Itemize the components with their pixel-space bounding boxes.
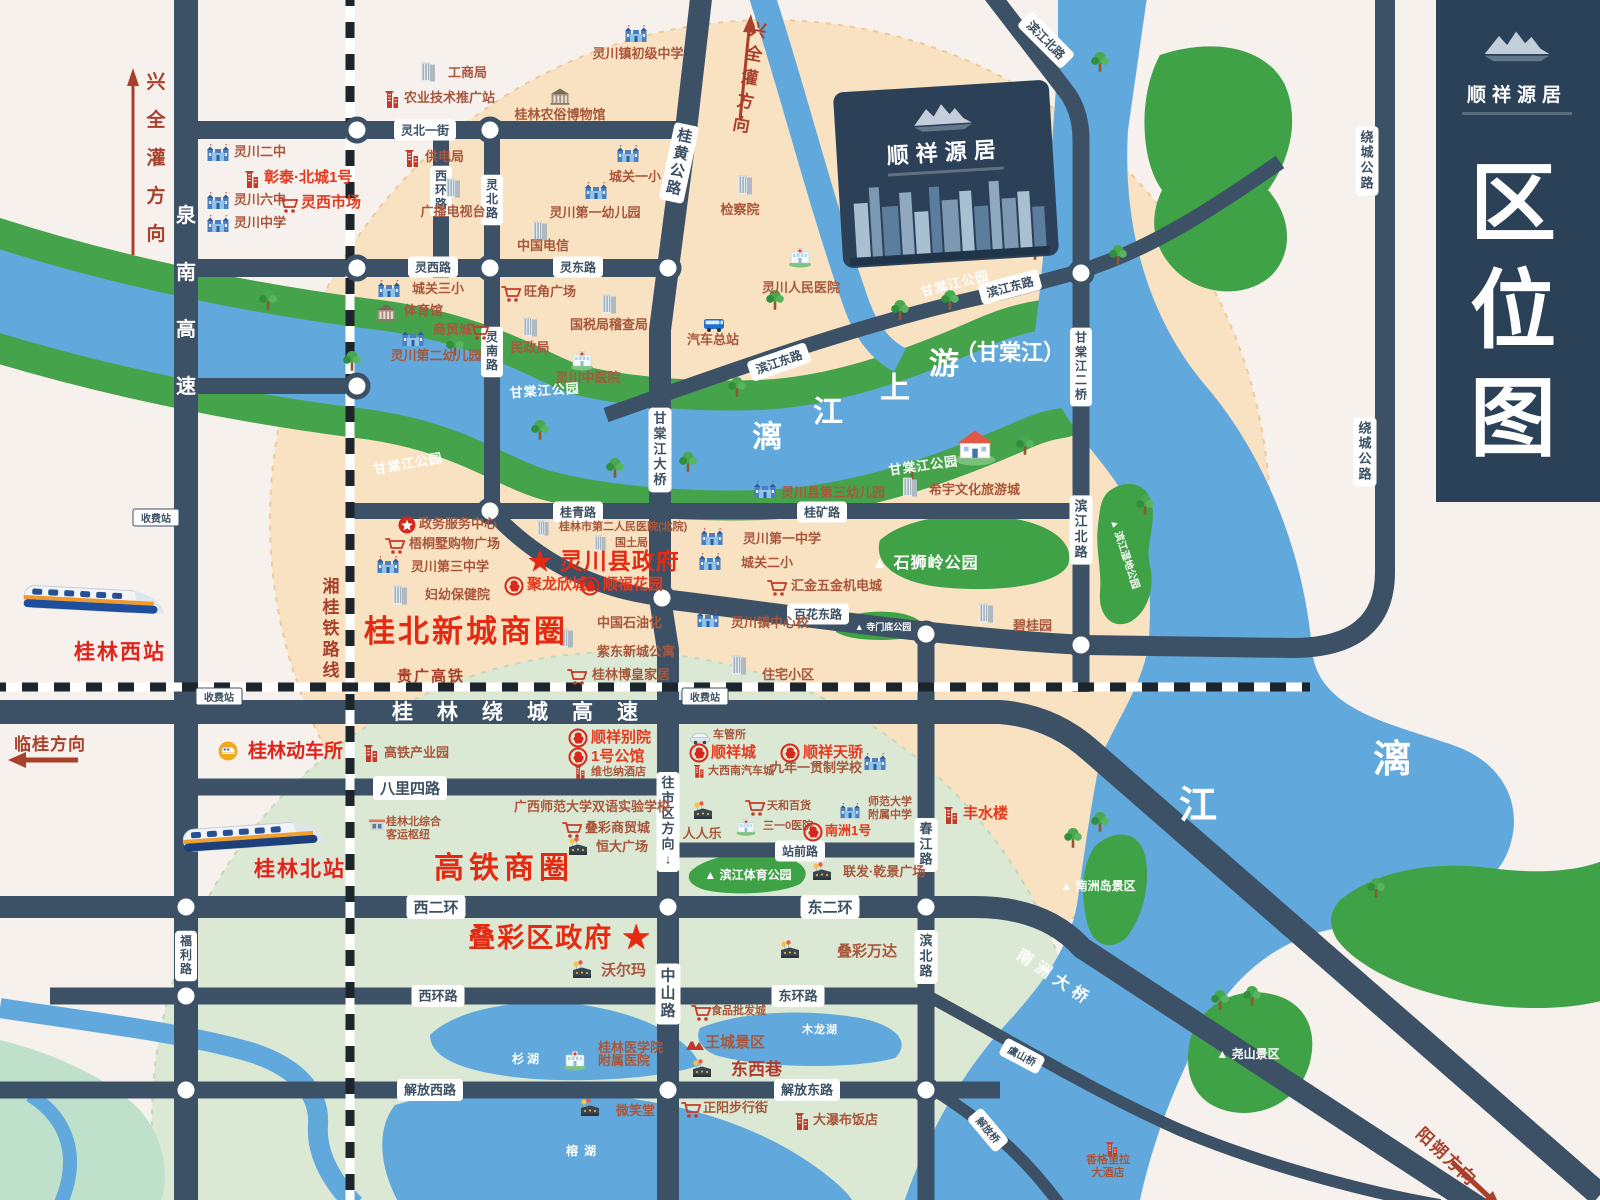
poi-label: 灵川第一幼儿园 [549,205,640,220]
gov-icon [523,318,537,337]
poi-label: 聚龙欣城 [526,575,587,593]
road-label-解放西路: 解放西路 [397,1079,463,1101]
map-text-漓: 漓 [752,420,782,454]
poi-label: 城关二小 [741,555,793,570]
road-label-绕城公路: 绕城公路 [1356,126,1379,195]
dtrain-icon [219,742,238,761]
poi-label: 中国电信 [517,238,569,253]
roundabout [657,896,679,918]
poi-label: 体育馆 [404,303,443,318]
map-text: 上 [880,372,910,405]
map-text-高铁商圈: 高铁商圈 [434,852,574,885]
map-text-▲ 滨江体育公园: ▲ 滨江体育公园 [704,867,791,882]
map-text: 榕湖 [566,1143,602,1158]
road-label-text: 东二环 [807,898,852,916]
poi-label: 妇幼保健院 [424,587,490,602]
poi-label: 广播电视台 [420,204,485,219]
poi-label: 桂林博皇家居 [591,667,670,682]
poi-label: 国税局稽查局 [570,317,648,332]
poi-label: 希宇文化旅游城 [929,482,1020,497]
toll-station-label: 收费站 [196,688,242,705]
map-text: 桂林西站 [73,640,166,664]
road-label-text: 东环路 [778,989,818,1004]
map-text: ▲ 石狮岭公园 [871,553,978,572]
poi-label: 商贸城 [433,322,472,337]
road-label-站前路: 站前路 [775,841,825,862]
poi-label: 联发·乾景广场 [843,864,925,879]
poi-label: 灵川镇初级中学 [592,46,683,61]
poi-label: 中国石油化 [597,615,662,630]
poi-label: 东西巷 [731,1059,783,1079]
poi-label: 广西师范大学双语实验学校 [514,799,671,814]
road-label-桂青路: 桂青路 [553,502,603,523]
gov-icon [393,586,407,605]
poi-label: 师范大学附属中学 [868,794,912,821]
poi-label: 汇金五金机电城 [791,578,882,593]
road-label-text: 甘棠江二桥 [1074,330,1088,402]
poi-label: 叠彩万达 [837,942,897,960]
map-text-桂北新城商圈: 桂北新城商圈 [364,614,568,649]
road-label-text: 桂青路 [559,504,597,519]
map-text: 桂林北站 [253,857,346,881]
road-label-text: 灵北一街 [401,122,449,137]
poi-label: 灵西市场 [301,193,361,211]
poi-label: 南洲1号 [825,823,871,838]
map-text-桂林绕城高速: 桂林绕城高速 [391,700,662,724]
road-label-text: 八里四路 [379,779,441,797]
poi-label: 灵川中学 [234,215,286,230]
toll-station-label: 收费站 [682,688,728,705]
map-text-江: 江 [1179,785,1217,827]
poi-label: 天和百货 [767,798,811,812]
poi-label: 顺祥城 [711,743,756,761]
map-text: （甘棠江） [955,340,1065,365]
poi-label: 微笑堂 [615,1103,655,1118]
poi-label: 旺角广场 [524,284,576,299]
poi-label: 碧桂园 [1012,618,1052,633]
poi-label: 桂林市第二人民医院(北院) [558,519,688,533]
roundabout [175,896,197,918]
road-label-绕城公路: 绕城公路 [1354,417,1377,486]
map-text: 叠彩区政府 ★ [468,922,652,953]
panel-slogan-strip [1462,112,1572,115]
road-label-灵东路: 灵东路 [553,257,603,278]
poi-label: 紫东新城公寓 [597,644,675,659]
road-label-text: 桂矿路 [803,504,841,519]
poi-label: 食品批发城 [711,1003,766,1017]
road-label-text: 灵西路 [415,259,452,274]
map-text-木龙湖: 木龙湖 [801,1022,838,1036]
roundabout [915,1079,937,1101]
location-map: 顺祥源居 顺祥源居 区 位 图 灵北一街灵西路灵东路西环路灵北路灵南路桂黄公路甘… [0,0,1600,1200]
poi-label: 沃尔玛 [601,961,646,979]
poi-label: 叠彩商贸城 [585,820,650,835]
map-text: 桂林绕城高速 [391,700,662,724]
roundabout [346,119,368,141]
poi-label: 灵川人民医院 [762,280,840,295]
poi-label: 1号公馆 [591,747,644,765]
gov-icon [903,478,917,497]
poi-label: 城关三小 [412,281,464,296]
poi-label: 灵川第三中学 [411,559,489,574]
map-text-江: 江 [813,396,843,429]
map-text-贵广高铁: 贵广高铁 [397,667,465,685]
poi-label: 住宅小区 [762,667,814,682]
road-label-text: 西二环 [413,899,458,916]
road-label-中山路: 中山路 [656,963,681,1024]
gov-icon [738,176,752,195]
road-label-八里四路: 八里四路 [373,776,447,800]
road-label-滨江北路: 滨江北路 [1070,495,1093,564]
panel-title-char-1: 区 [1470,156,1556,252]
poi-label: 灵川第二幼儿园 [390,348,481,363]
toll-text: 收费站 [204,691,234,704]
map-text-桂林西站: 桂林西站 [73,640,166,664]
road-label-text: 福利路 [179,933,193,976]
road-label-西二环: 西二环 [407,895,466,919]
panel-title-char-2: 位 [1470,263,1556,359]
poi-label: 城关一小 [609,169,661,184]
poi-label: 正阳步行街 [703,1100,768,1115]
project-card: 顺祥源居 [833,80,1059,269]
poi-label: 车管所 [713,727,746,741]
poi-label: 灵川镇中心校 [731,615,810,630]
roundabout [479,119,501,141]
road-label-西环路: 西环路 [412,985,465,1007]
road-label-往市区方向↓: 往市区方向↓ [657,772,680,872]
poi-label: 维也纳酒店 [591,764,646,778]
road-label-灵北一街: 灵北一街 [394,120,456,141]
poi-label: 高铁产业园 [384,745,449,760]
toll-station-label: 收费站 [133,509,179,526]
poi-label: 工商局 [448,65,487,80]
map-text: ▲ 寺门底公园 [855,621,911,632]
map-text-▲ 南洲岛景区: ▲ 南洲岛景区 [1060,878,1135,893]
map-text: 贵广高铁 [397,667,465,685]
road-label-甘棠江二桥: 甘棠江二桥 [1070,328,1092,407]
poi-label: 农业技术推广站 [403,90,495,105]
roundabout [346,375,368,397]
poi-label: 国土局 [615,535,648,549]
panel-title-char-3: 图 [1470,371,1556,467]
road-label-灵西路: 灵西路 [408,257,458,278]
map-text-杉湖: 杉湖 [512,1051,542,1066]
gov-icon [446,179,460,198]
map-text: 湘桂铁路线 [322,576,341,680]
map-text-▲ 石狮岭公园: ▲ 石狮岭公园 [871,553,978,572]
roundabout [915,896,937,918]
map-text: 漓 [1373,738,1411,781]
panel-brand: 顺祥源居 [1467,83,1567,106]
road-label-text: 滨北路 [919,933,933,979]
poi-广西师范大学双语实验学校: 广西师范大学双语实验学校 [514,799,671,814]
poi-label: 桂林农俗博物馆 [513,107,605,122]
map-text-漓: 漓 [1373,738,1411,781]
gov-icon [537,520,548,535]
map-text-（甘棠江）: （甘棠江） [955,340,1065,365]
road-label-text: 春江路 [918,821,933,867]
road-label-甘棠江大桥: 甘棠江大桥 [649,408,672,493]
road-label-text: 灵东路 [560,259,597,274]
roundabout [1070,262,1092,284]
map-text: 江 [813,396,843,429]
toll-text: 收费站 [690,691,720,704]
map-text: 临桂方向 [14,734,86,754]
map-text-桂林北站: 桂林北站 [253,857,346,881]
busstn-icon [369,820,385,831]
map-text-▲ 寺门底公园: ▲ 寺门底公园 [855,621,911,632]
map-text-★ 灵川县政府: ★ 灵川县政府 [528,548,679,574]
map-text: 漓 [752,420,782,454]
roundabout [175,985,197,1007]
map-text: ▲ 尧山景区 [1216,1046,1279,1061]
road-label-text: 解放西路 [403,1083,457,1098]
gov-icon [732,656,746,675]
toll-text: 收费站 [141,512,171,525]
poi-label: 顺祥天骄 [803,743,864,761]
poi-label: 彰泰·北城1号 [264,168,352,186]
road-label-滨北路: 滨北路 [915,930,938,984]
poi-label: 汽车总站 [687,332,739,347]
map-text: 高铁商圈 [434,852,574,885]
poi-label: 民政局 [510,340,549,355]
map-text-▲ 尧山景区: ▲ 尧山景区 [1216,1046,1279,1061]
poi-label: 供电局 [424,149,464,164]
road-label-text: 中山路 [660,966,676,1019]
roundabout [1070,634,1092,656]
roundabout [657,257,679,279]
title-panel: 顺祥源居 区 位 图 [1436,0,1600,502]
map-text: ▲ 滨江体育公园 [704,867,791,882]
poi-label: 人人乐 [682,826,721,841]
road-label-东二环: 东二环 [801,895,860,919]
svc-icon [399,517,416,534]
road-label-text: 绕城公路 [1360,129,1374,190]
map-text: 江 [1179,785,1217,827]
road-label-text: 西环路 [418,989,458,1004]
map-text: 桂北新城商圈 [364,614,568,649]
roundabout [479,257,501,279]
poi-label: 恒大广场 [596,839,648,854]
map-text: 木龙湖 [801,1022,838,1036]
roundabout [657,1079,679,1101]
road-label-text: 滨江北路 [1074,498,1088,559]
poi-label: 灵川县第三幼儿园 [781,485,885,500]
map-text-湘桂铁路线: 湘桂铁路线 [322,576,341,680]
poi-label: 丰水楼 [963,804,1008,822]
map-text: ★ 灵川县政府 [528,548,679,574]
poi-label: 梧桐墅购物广场 [409,536,500,551]
map-text: ▲ 南洲岛景区 [1060,878,1135,893]
road-label-text: 绕城公路 [1358,420,1372,481]
poi-label: 检察院 [720,202,759,217]
gov-icon [421,63,435,82]
map-text-上: 上 [880,372,910,405]
road-label-东环路: 东环路 [772,985,825,1007]
road-label-text: 灵南路 [486,329,499,372]
map-text-临桂方向: 临桂方向 [14,734,86,754]
map-text-榕湖: 榕湖 [566,1143,602,1158]
poi-label: 灵川二中 [234,144,286,159]
roundabout [175,1079,197,1101]
poi-label: 香格里拉大酒店 [1085,1152,1130,1179]
gov-icon [602,295,616,314]
poi-label: 大瀑布饭店 [813,1112,878,1127]
road-label-福利路: 福利路 [175,931,197,981]
road-label-text: 甘棠江大桥 [652,411,667,487]
poi-工商局: 工商局 [421,63,487,82]
gov-icon [979,604,993,623]
road-label-text: 站前路 [782,843,819,858]
poi-label: 政务服务中心 [419,516,497,531]
road-label-text: 灵北路 [486,177,499,220]
road-label-桂矿路: 桂矿路 [797,502,847,523]
poi-label: 王城景区 [705,1033,765,1051]
road-label-解放东路: 解放东路 [774,1079,840,1101]
poi-label: 桂林动车所 [247,739,343,762]
map-text: 杉湖 [512,1051,542,1066]
poi-label: 顺祥别院 [591,728,651,746]
poi-紫东新城公寓: 紫东新城公寓 [597,644,675,659]
roundabout [346,257,368,279]
poi-label: 大西南汽车城 [708,763,774,777]
poi-label: 顺福花园 [603,575,663,593]
roundabout [915,623,937,645]
map-text-叠彩区政府 ★: 叠彩区政府 ★ [468,922,652,953]
map-stage: 顺祥源居 顺祥源居 区 位 图 灵北一街灵西路灵东路西环路灵北路灵南路桂黄公路甘… [0,0,1600,1200]
road-label-text: 解放东路 [780,1083,834,1098]
poi-label: 九年一贯制学校 [770,760,863,775]
poi-label: 灵川第一中学 [743,531,821,546]
poi-label: 灵川六中 [234,192,286,207]
